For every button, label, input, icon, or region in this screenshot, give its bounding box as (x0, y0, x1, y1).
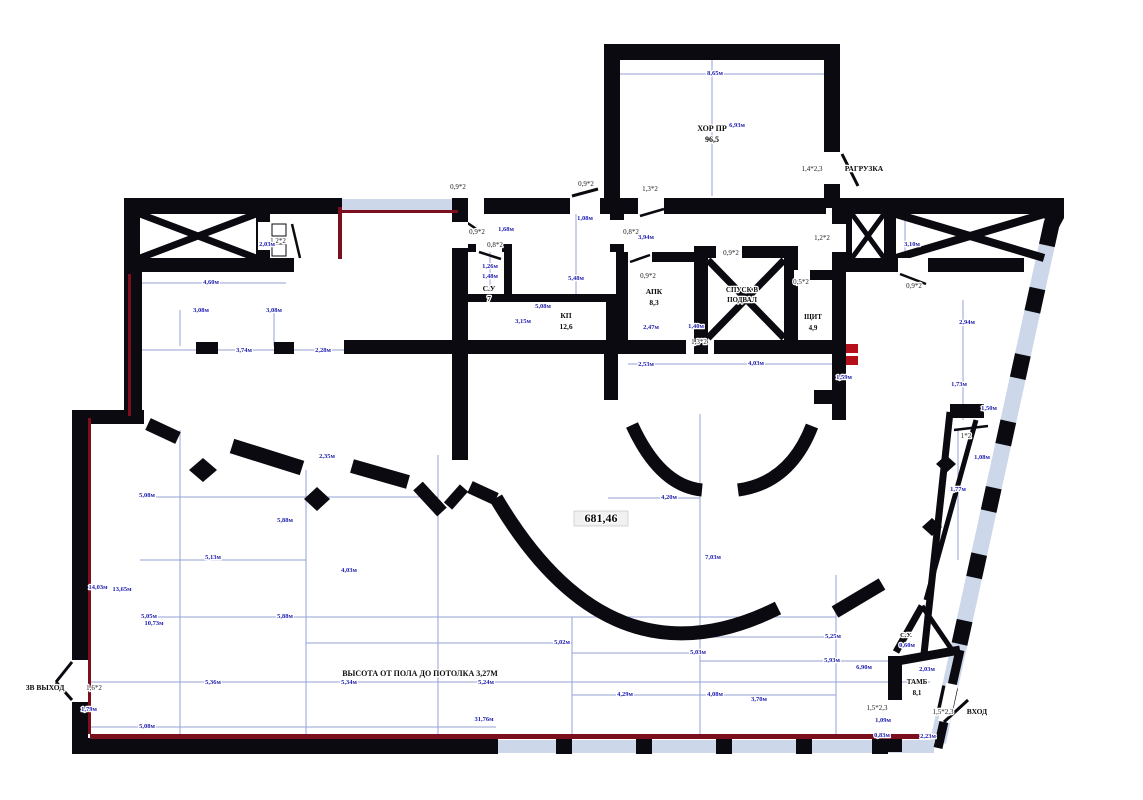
curved-wall-upper-left (632, 425, 702, 490)
dimension-label-37: 31,76м (474, 716, 494, 723)
exit-label: ЗВ ВЫХОД (26, 683, 66, 692)
dimension-label-21: 1,59м (836, 374, 852, 381)
dimension-label-6: 3,08м (266, 307, 282, 314)
door-size-su7: 0,8*2 (487, 241, 503, 249)
labels-layer: ХОР ПР96,5РАГРУЗКАС.У7КП12,6АПК8,3СПУСК … (26, 70, 998, 740)
curved-wall-dash (835, 584, 882, 612)
dimension-label-28: 5,88м (277, 613, 293, 620)
room-area-kp: 12,6 (559, 322, 572, 331)
dimension-label-30: 13,65м (112, 586, 132, 593)
dimension-label-34: 5,36м (205, 679, 221, 686)
dimension-label-56: 1,08м (974, 454, 990, 461)
room-label-kp: КП (560, 311, 571, 320)
room-area-su7: 7 (487, 294, 491, 303)
door-size-su-corr: 0,9*2 (469, 228, 485, 236)
room-label-su-small: С.У. (900, 632, 912, 639)
dimension-label-3: 2,03м (259, 241, 275, 248)
dimension-label-52: 0,60м (899, 642, 915, 649)
dimension-label-25: 5,88м (277, 517, 293, 524)
door-size-exit: 1,6*2 (86, 684, 102, 692)
room-label-hor-pr: ХОР ПР (697, 124, 727, 133)
dimension-label-26: 5,13м (205, 554, 221, 561)
dimension-label-39: 1,79м (81, 706, 97, 713)
dimension-label-54: 1,73м (951, 381, 967, 388)
room-label-spusk-1: СПУСК В (726, 286, 759, 294)
door-size-spusk: 0,9*2 (723, 249, 739, 257)
dimension-label-35: 5,34м (341, 679, 357, 686)
dimension-label-5: 3,08м (193, 307, 209, 314)
dimension-label-9: 1,08м (577, 215, 593, 222)
dimension-label-47: 3,70м (751, 696, 767, 703)
ceiling-height-note: ВЫСОТА ОТ ПОЛА ДО ПОТОЛКА 3,27М (342, 669, 498, 678)
dimension-label-16: 3,15м (515, 318, 531, 325)
dimension-label-48: 2,03м (919, 666, 935, 673)
dimension-label-44: 6,90м (856, 664, 872, 671)
hall-area-label: 681,46 (585, 511, 618, 525)
dimension-label-42: 5,25м (825, 633, 841, 640)
dimension-label-33: 5,05м (141, 613, 157, 620)
dimension-label-53: 2,94м (959, 319, 975, 326)
door-size-right-shaft: 0,9*2 (906, 282, 922, 290)
dimension-label-43: 5,93м (824, 657, 840, 664)
hydrant-marks (846, 344, 858, 365)
door-size-top-1: 0,9*2 (450, 183, 466, 191)
dimension-label-45: 4,29м (617, 691, 633, 698)
dimension-label-11: 1,68м (498, 226, 514, 233)
dimension-label-50: 0,83м (874, 732, 890, 739)
curved-walls (496, 425, 882, 633)
room-label-razgruzka: РАГРУЗКА (845, 164, 884, 173)
dimension-label-51: 2,23м (920, 733, 936, 740)
curved-wall-main (496, 498, 778, 633)
floor-plan: ВЫСОТА ОТ ПОЛА ДО ПОТОЛКА 3,27М ХОР ПР96… (0, 0, 1143, 800)
door-size-hall: 1,3*2 (691, 338, 707, 346)
door-size-top-3: 1,3*2 (642, 185, 658, 193)
dimension-label-46: 4,08м (707, 691, 723, 698)
dimension-label-40: 5,02м (554, 639, 570, 646)
dimension-label-17: 2,47м (643, 324, 659, 331)
dimension-label-23: 7,03м (705, 554, 721, 561)
entrance-label: ВХОД (967, 707, 988, 716)
dimension-label-38: 5,08м (139, 723, 155, 730)
door-size-entrance: 1,5*2,3 (933, 708, 955, 716)
door-size-corridor: 0,8*2 (623, 228, 639, 236)
room-area-hor-pr: 96,5 (705, 135, 719, 144)
zigzag-partition (148, 424, 496, 512)
room-label-spusk-2: ПОДВАЛ (727, 296, 758, 304)
dimension-label-32: 5,08м (139, 492, 155, 499)
dimension-label-19: 2,53м (638, 361, 654, 368)
dimension-label-24: 2,35м (319, 453, 335, 460)
dimension-label-36: 5,24м (478, 679, 494, 686)
dimension-label-1: 6,93м (729, 122, 745, 129)
dimension-label-13: 1,48м (482, 273, 498, 280)
dimension-label-55: 1,50м (981, 405, 997, 412)
door-size-tamb-left: 1,5*2,3 (867, 704, 889, 712)
dimension-label-4: 4,60м (203, 279, 219, 286)
door-size-top-2: 0,9*2 (578, 180, 594, 188)
dimension-label-12: 1,26м (482, 263, 498, 270)
dimension-label-29: 14,03м (88, 584, 108, 591)
dimension-label-31: 10,73м (144, 620, 164, 627)
dimension-label-18: 1,40м (688, 323, 704, 330)
dimension-label-14: 5,48м (568, 275, 584, 282)
dimension-label-49: 1,09м (875, 717, 891, 724)
door-size-right-wall: 1,2*2 (814, 234, 830, 242)
door-size-wedge: 1*2 (961, 432, 972, 440)
room-label-apk: АПК (646, 287, 663, 296)
dimension-label-0: 8,65м (707, 70, 723, 77)
dimension-label-57: 1,77м (950, 486, 966, 493)
door-size-shchit: 0,5*2 (793, 278, 809, 286)
dimension-label-27: 4,03м (341, 567, 357, 574)
floor-plan-drawing: ВЫСОТА ОТ ПОЛА ДО ПОТОЛКА 3,27М ХОР ПР96… (0, 0, 1143, 800)
door-size-apk: 0,9*2 (640, 272, 656, 280)
dimension-label-7: 3,74м (236, 347, 252, 354)
dimension-label-22: 4,20м (661, 494, 677, 501)
dimension-label-2: 3,10м (904, 241, 920, 248)
room-label-tamb: ТАМБ (907, 678, 928, 686)
dimension-label-20: 4,03м (748, 360, 764, 367)
curved-wall-upper-right (738, 426, 812, 490)
room-area-tamb: 8,1 (913, 689, 922, 697)
door-size-razgruzka: 1,4*2,3 (802, 165, 824, 173)
dimension-label-41: 5,03м (690, 649, 706, 656)
room-label-shchit: ЩИТ (804, 313, 822, 321)
room-label-su7: С.У (483, 284, 496, 293)
dimension-label-10: 3,94м (638, 234, 654, 241)
dimension-label-8: 2,28м (315, 347, 331, 354)
room-area-apk: 8,3 (649, 298, 659, 307)
dimension-label-15: 5,08м (535, 303, 551, 310)
room-area-shchit: 4,9 (809, 324, 818, 332)
